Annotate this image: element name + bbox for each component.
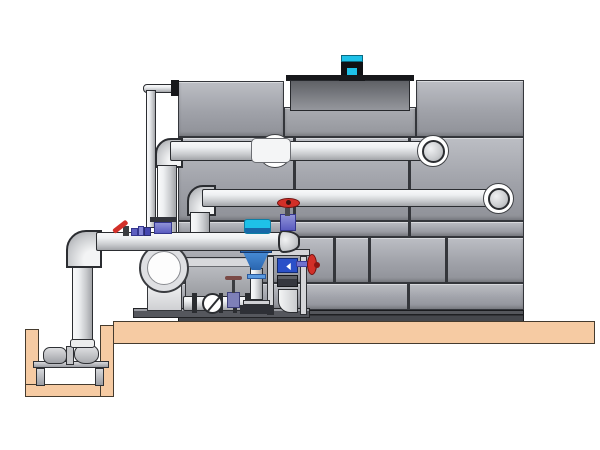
- side-handwheel-valve: [0, 0, 600, 450]
- handwheel-hub: [314, 262, 320, 268]
- illustration-canvas: [0, 0, 600, 450]
